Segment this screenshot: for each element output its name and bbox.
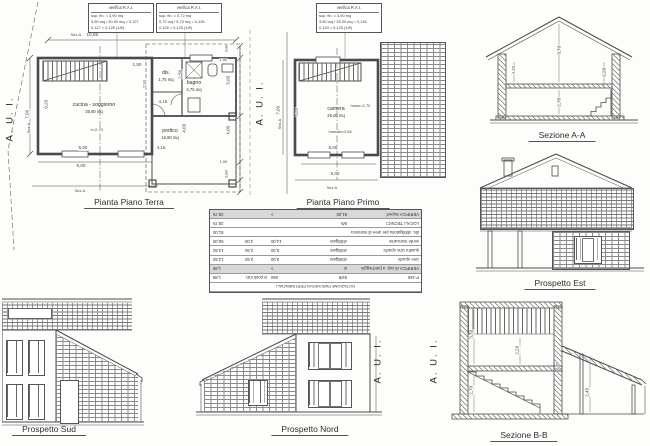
cell: 2,50	[245, 257, 271, 262]
stamp-line: 0,126 > 0,125 (1/8)	[159, 25, 219, 31]
section-marker: Sez.A	[278, 118, 282, 130]
dim-label: 2,45	[586, 387, 591, 397]
aui-label: A. U. I.	[373, 340, 384, 384]
section-a-a: 3,70 2,20 2,70 1,20	[476, 10, 648, 130]
slab-hatch	[496, 116, 624, 120]
table-row: cine opachiobbligato5,002,5012,50	[210, 256, 421, 265]
room-area: 35,80 mq	[64, 109, 124, 114]
view-title-pianta-terra: Pianta Piano Terra	[84, 197, 174, 209]
roof-hatch	[380, 42, 446, 178]
dim-label: 3,70	[470, 329, 475, 339]
aui-label: A. U. I.	[429, 340, 440, 384]
dim-label: 1,00	[219, 58, 228, 62]
cell: obbligato	[297, 257, 347, 262]
table-title-row: DOTAZIONE PARCHEGGI PERTINENZIALI	[210, 283, 421, 292]
cell: >	[271, 212, 297, 217]
dim-label: 0,80	[224, 44, 228, 53]
cell: dis. obbligatoria per aree di manovra	[347, 230, 421, 235]
view-title-prospetto-nord: Prospetto Nord	[271, 424, 348, 436]
window	[6, 384, 23, 420]
slab-hatch	[460, 302, 562, 308]
stair-hatch	[299, 63, 361, 81]
room-area: 1,75 mq	[154, 77, 178, 82]
dim-label: 10,05	[86, 33, 99, 38]
cell: cine opachi	[347, 257, 421, 262]
room-area: 26,00 mq	[320, 113, 352, 118]
room-bagno: bagno 4,75 mq	[180, 80, 208, 92]
cell: obbligato	[297, 248, 347, 253]
room-camera: camera 26,00 mq	[320, 106, 352, 118]
view-title-prospetto-sud: Prospetto Sud	[12, 424, 86, 436]
aui-label: A. U. I.	[255, 82, 266, 126]
stamp-title: verifica R.A.I.	[159, 5, 219, 13]
dim-label: 5,00	[78, 146, 88, 151]
cell: si	[297, 266, 347, 271]
section-b-b: 3,70 2,20 2,70 2,45 0,30	[404, 290, 650, 442]
shutter	[38, 385, 42, 417]
cell: 4,00	[245, 239, 271, 244]
wall-hatch	[460, 306, 468, 414]
window-glass	[582, 238, 594, 262]
room-area: 16,60 mq	[150, 135, 190, 140]
dim-label: 5,00	[330, 172, 340, 177]
cell: 060	[271, 275, 297, 280]
cell: 28,76	[210, 212, 245, 217]
table-row: quadro cine opachiobbligato5,002,5012,50	[210, 247, 421, 256]
cell: VERIFICA di sup. a parcheggio	[347, 266, 421, 271]
cell: VERIFICA Superf.	[347, 212, 421, 217]
dim-label: 0,80	[224, 170, 228, 179]
shutter	[249, 381, 254, 403]
floor-plan-ground-drawing	[22, 28, 244, 196]
cell: >	[271, 266, 297, 271]
window	[308, 380, 352, 408]
parking-verification-table: DOTAZIONE PARCHEGGI PERTINENZIALI P-1609…	[209, 209, 422, 293]
dim-label: 2,90	[142, 80, 146, 89]
dim-label: 2,50	[179, 69, 184, 79]
window-glass	[318, 381, 330, 407]
shutter	[309, 381, 317, 405]
window	[28, 340, 45, 376]
shutter	[576, 238, 581, 260]
dim-label: 4,15	[156, 146, 166, 151]
shutter	[341, 343, 349, 367]
dim-label: 4,00	[183, 123, 188, 133]
cell: 12,50	[210, 257, 245, 262]
floor-plan-first: camera 26,00 mq hmax=2,70 hmedia=2,56 5,…	[256, 28, 456, 196]
stamp-title: verifica R.A.I.	[319, 5, 379, 13]
room-name: bagno	[180, 80, 208, 87]
window	[248, 380, 268, 406]
shutter	[29, 385, 33, 417]
roof-tiles	[480, 188, 634, 230]
dim-label: 5,20	[295, 107, 300, 117]
shutter	[16, 341, 20, 373]
dim-label: 3,70	[558, 45, 563, 55]
cell: 1,88	[210, 266, 245, 271]
section-marker: Sez.A	[326, 186, 338, 190]
dim-label: 4,00	[227, 125, 232, 135]
dim-label: 1,50	[132, 63, 142, 68]
slab-hatch	[468, 366, 562, 371]
view-title-pianta-primo: Pianta Piano Primo	[297, 197, 390, 209]
room-height: hmedia=2,56	[328, 130, 352, 134]
table-row: P-16092/8060in posti min.1,88	[210, 274, 421, 283]
cell: P-160	[347, 275, 421, 280]
stamp-line: 0,127 > 0,125 (1/8)	[91, 25, 151, 31]
view-title-prospetto-est: Prospetto Est	[524, 278, 595, 290]
dim-label: 2,70	[558, 97, 563, 107]
stamp-rai-3: verifica R.A.I. sup. fin. = 3,50 mq 3,50…	[316, 3, 382, 33]
roof-structure-hatch	[468, 308, 554, 334]
wall-hatch	[498, 54, 506, 118]
window	[6, 340, 23, 376]
wall-hatch	[554, 306, 562, 414]
dim-label: 2,20	[516, 345, 521, 355]
cell: 5,00	[271, 248, 297, 253]
floor-plan-ground: Sez.A 10,05 1,50 cucina - soggiorno 35,8…	[22, 28, 244, 196]
room-area: 4,75 mq	[180, 87, 208, 92]
slab-hatch	[506, 84, 612, 88]
shutter	[7, 385, 11, 417]
room-dis: dis. 1,75 mq	[154, 70, 178, 82]
table-row: verde mancanteobbligato14,004,0056,00	[210, 237, 421, 246]
roof-tiles	[262, 302, 370, 334]
room-cucina: cucina - soggiorno 35,80 mq	[64, 102, 124, 114]
room-name: cucina - soggiorno	[64, 102, 124, 109]
table-row: VERIFICA Superf.81,00>28,76	[210, 210, 421, 219]
table-row: dis. obbligatoria per aree di manovra81,…	[210, 228, 421, 237]
stamp-line: 0,134 > 0,125 (1/8)	[319, 25, 379, 31]
table-title: DOTAZIONE PARCHEGGI PERTINENZIALI	[276, 285, 355, 290]
cell: obbligato	[297, 239, 347, 244]
dim-label: 1,00	[219, 160, 228, 164]
room-name: dis.	[154, 70, 178, 77]
window	[574, 236, 602, 264]
room-height: h=2,70	[90, 128, 103, 132]
slab-hatch	[452, 414, 568, 419]
view-title-sezione-b: Sezione B-B	[490, 430, 557, 442]
cell: 5,00	[271, 257, 297, 262]
elevation-south	[2, 296, 146, 436]
section-marker: Sez.A	[70, 33, 82, 37]
cell: quadro cine opachi	[347, 248, 421, 253]
cell: verde mancante	[347, 239, 421, 244]
elevation-north	[196, 296, 396, 444]
cell: 28,76	[210, 221, 245, 226]
architectural-sheet: { "aui_label": "A. U. I.", "stamps": [ {…	[0, 0, 650, 446]
door	[60, 380, 79, 424]
dim-label: 4,15	[158, 100, 168, 105]
dim-label: 5,00	[328, 146, 338, 151]
cell: LOCALI TECNICI	[347, 221, 421, 226]
dim-label: 3,00	[227, 75, 232, 85]
stamp-rai-2: verifica R.A.I. sup. fin. = 0,72 mq 0,72…	[156, 3, 222, 33]
dim-label: 0,30	[555, 362, 559, 371]
room-height: hmax=2,70	[350, 104, 371, 108]
window	[308, 342, 352, 370]
dim-label: 5,00	[76, 164, 86, 169]
room-name: camera	[320, 106, 352, 113]
shutter	[7, 341, 11, 373]
cell: in posti min.	[245, 275, 271, 280]
cell: 1,88	[210, 275, 245, 280]
cell: 14,00	[271, 239, 297, 244]
cell: 12,50	[210, 248, 245, 253]
roof-cartouche	[8, 308, 52, 319]
dim-label: 2,70	[470, 385, 475, 395]
section-marker: Sez.A	[27, 122, 31, 134]
stamp-rai-1: verifica R.A.I. sup. fin. = 3,90 mq 3,90…	[88, 3, 154, 33]
wall-hatch	[612, 54, 620, 118]
shutter	[309, 343, 317, 367]
dim-label: 1,20	[511, 66, 515, 75]
dim-label: 2,20	[603, 67, 608, 77]
dim-label: 7,00	[277, 105, 282, 115]
window-glass	[318, 343, 330, 369]
window	[28, 384, 45, 420]
dim-label: 7,00	[26, 109, 31, 119]
aui-label: A. U. I.	[5, 98, 16, 142]
section-marker: Sez.A	[74, 189, 86, 193]
table-row: VERIFICA di sup. a parcheggiosi>1,88	[210, 265, 421, 274]
shutter	[260, 381, 265, 403]
cell: 9/5	[297, 221, 347, 226]
cell: 56,00	[210, 239, 245, 244]
cell: 81,00	[210, 230, 245, 235]
stair-hatch	[43, 61, 107, 81]
dim-label: 9,20	[45, 99, 50, 109]
shutter	[29, 341, 33, 373]
stamp-title: verifica R.A.I.	[91, 5, 151, 13]
shutter	[16, 385, 20, 417]
view-title-sezione-a: Sezione A-A	[529, 130, 596, 142]
shutter	[341, 381, 349, 405]
cell: 81,00	[297, 212, 347, 217]
elevation-east	[474, 148, 648, 290]
table-row: LOCALI TECNICI9/528,76	[210, 219, 421, 228]
cell: 92/8	[297, 275, 347, 280]
shutter	[38, 341, 42, 373]
cell: 2,50	[245, 248, 271, 253]
